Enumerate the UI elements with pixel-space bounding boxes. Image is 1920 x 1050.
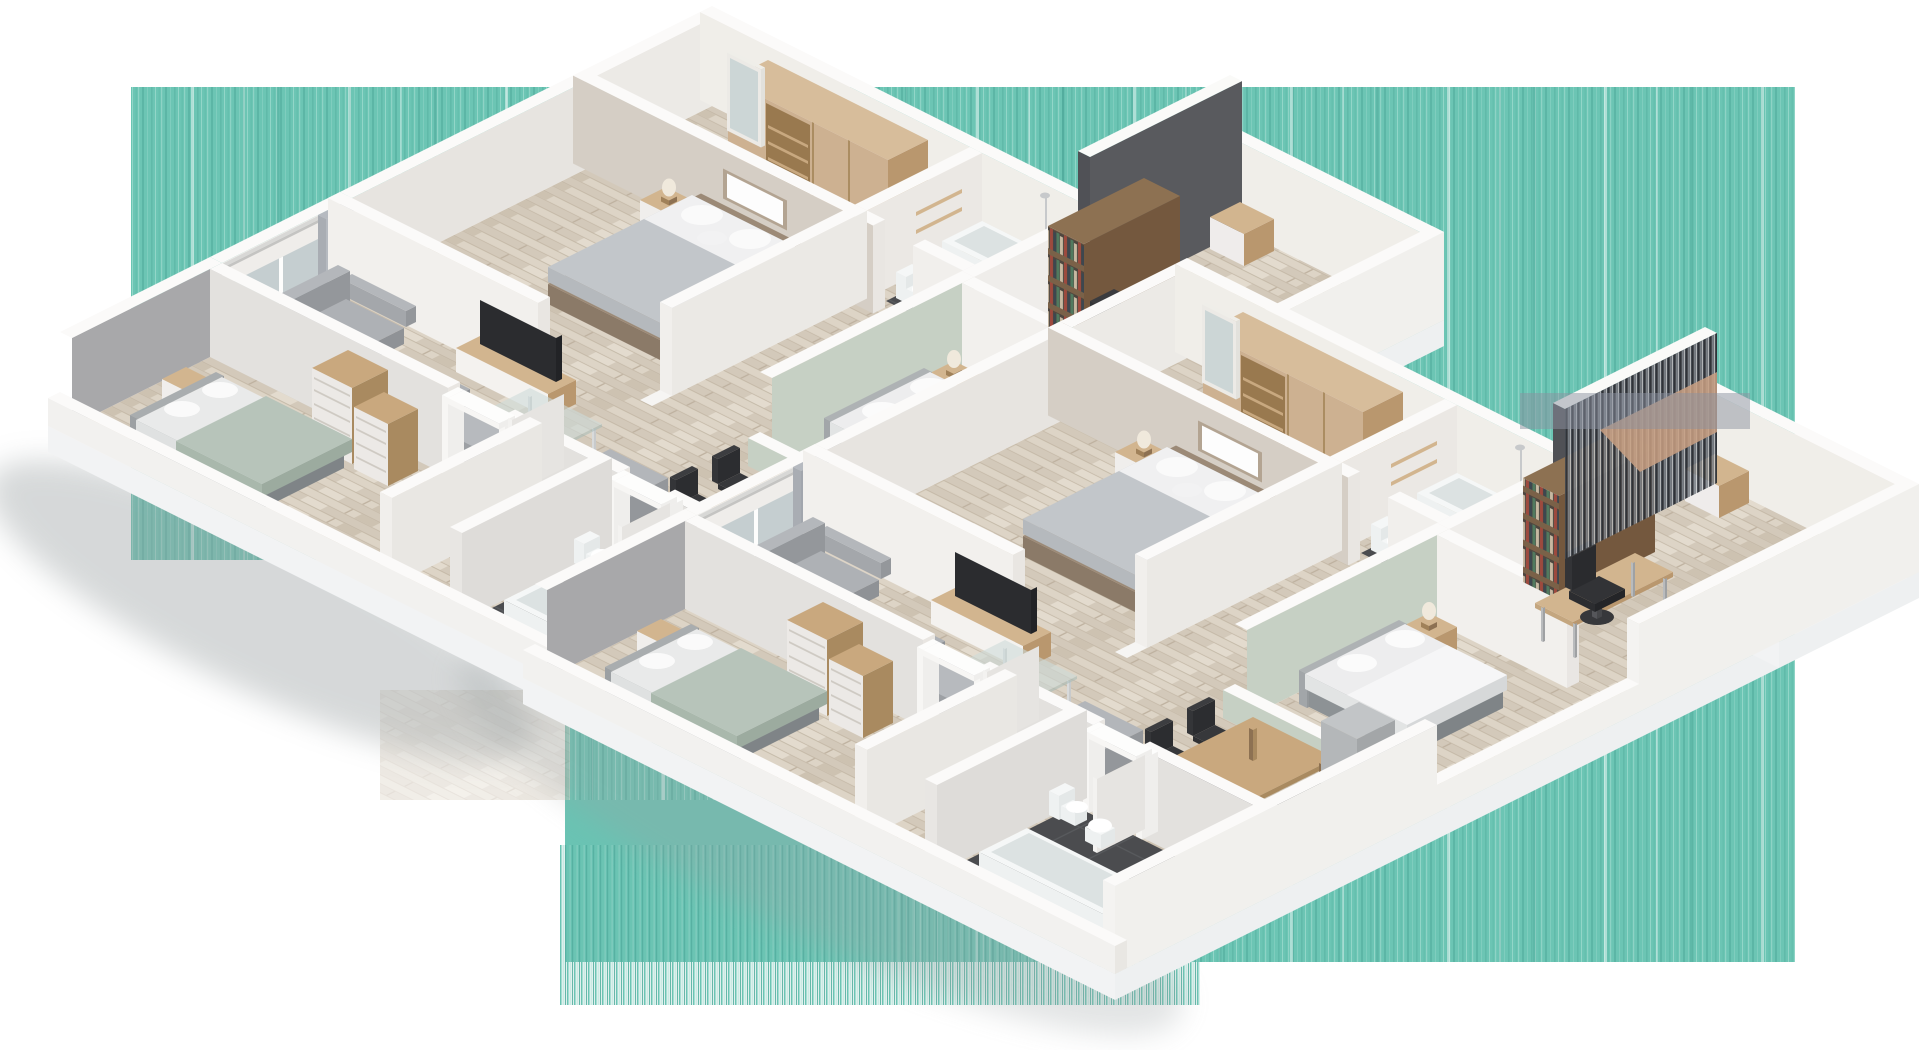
lamp-shade bbox=[947, 350, 961, 368]
pillow-small bbox=[697, 231, 727, 245]
wall-corridor bbox=[660, 302, 672, 396]
dining-table-leg bbox=[1249, 728, 1253, 761]
lamp-shade bbox=[1137, 431, 1151, 449]
desk-leg bbox=[1541, 607, 1543, 642]
toilet-tank bbox=[1049, 791, 1059, 820]
wall-master-ne-greige bbox=[1348, 472, 1360, 566]
pillow bbox=[639, 653, 675, 669]
bookshelf-books bbox=[1523, 478, 1559, 600]
pillow-small bbox=[1172, 483, 1202, 497]
pillow bbox=[729, 229, 771, 249]
pillow bbox=[677, 634, 713, 650]
office-chair-back bbox=[1565, 553, 1572, 591]
desk-leg bbox=[1573, 623, 1575, 658]
dining-chair-back bbox=[712, 456, 718, 484]
mirror-frame bbox=[1236, 320, 1240, 400]
wall-corridor bbox=[1135, 554, 1147, 648]
coffee-table-leg bbox=[594, 428, 596, 451]
tv bbox=[1031, 587, 1037, 634]
pillow bbox=[1204, 481, 1246, 501]
lamp-shade bbox=[662, 179, 676, 197]
toilet-bowl bbox=[1066, 801, 1088, 813]
toilet-tank bbox=[896, 272, 906, 303]
sink-basin bbox=[1088, 819, 1112, 833]
shower-head bbox=[1515, 445, 1525, 451]
desk-leg bbox=[1633, 562, 1635, 597]
toilet-tank bbox=[1371, 524, 1381, 555]
pillow bbox=[164, 401, 200, 417]
shower-head bbox=[1040, 193, 1050, 199]
pillow bbox=[202, 382, 238, 398]
mirror bbox=[1205, 310, 1233, 394]
coffee-table-leg bbox=[1069, 680, 1071, 703]
canvas bbox=[0, 0, 1920, 1050]
pillow bbox=[1337, 654, 1377, 672]
pillow bbox=[1385, 630, 1425, 648]
tv bbox=[556, 335, 562, 382]
pillow bbox=[1156, 457, 1198, 477]
desk-leg bbox=[1543, 607, 1545, 642]
desk-leg bbox=[1575, 623, 1577, 658]
desk-leg bbox=[1631, 562, 1633, 597]
wall-master-ne-greige bbox=[873, 220, 885, 314]
lamp-shade bbox=[1422, 602, 1436, 620]
floor-plan-render bbox=[0, 0, 1920, 1050]
mirror bbox=[730, 58, 758, 142]
pillow bbox=[681, 205, 723, 225]
glitch-blue-band bbox=[1520, 393, 1750, 429]
dining-chair-back bbox=[1187, 708, 1193, 736]
dining-table-leg bbox=[1253, 728, 1257, 761]
mirror-frame bbox=[761, 68, 765, 148]
